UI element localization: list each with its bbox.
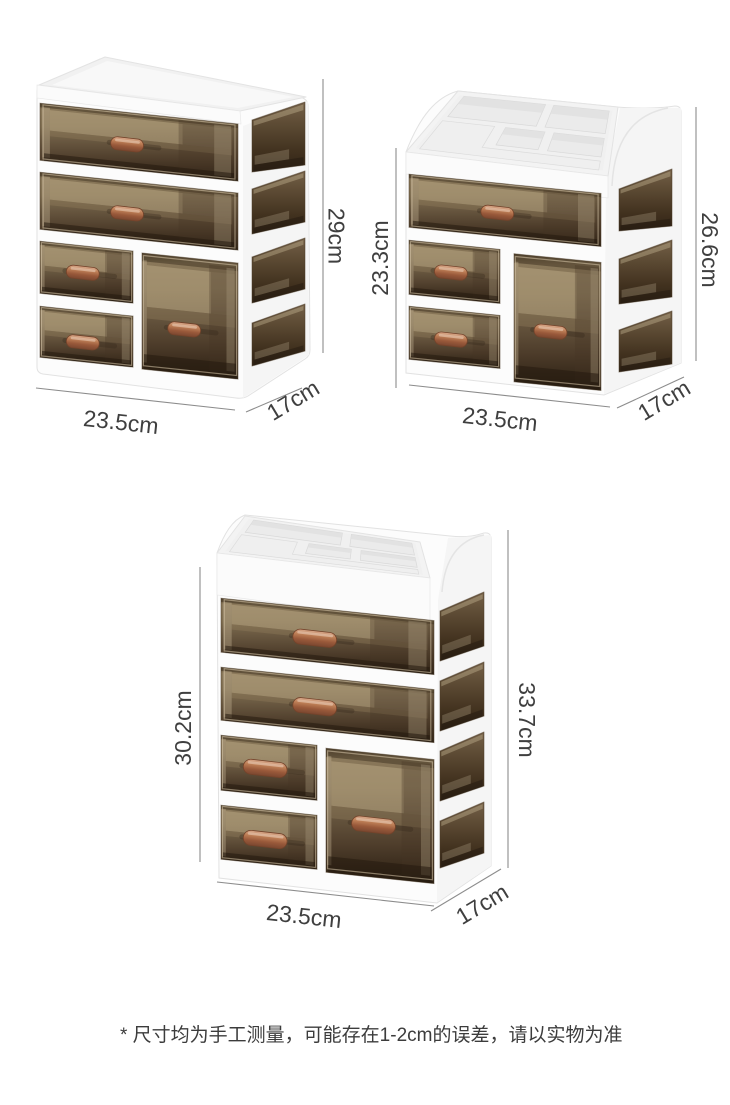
svg-text:* 尺寸均为手工测量，可能存在1-2cm的误差，请以实物为准: * 尺寸均为手工测量，可能存在1-2cm的误差，请以实物为准 xyxy=(120,1024,622,1046)
svg-text:30.2cm: 30.2cm xyxy=(170,690,196,765)
svg-text:29cm: 29cm xyxy=(324,208,350,264)
svg-text:33.7cm: 33.7cm xyxy=(514,682,540,757)
svg-text:23.3cm: 23.3cm xyxy=(367,220,393,295)
svg-text:26.6cm: 26.6cm xyxy=(697,212,723,287)
